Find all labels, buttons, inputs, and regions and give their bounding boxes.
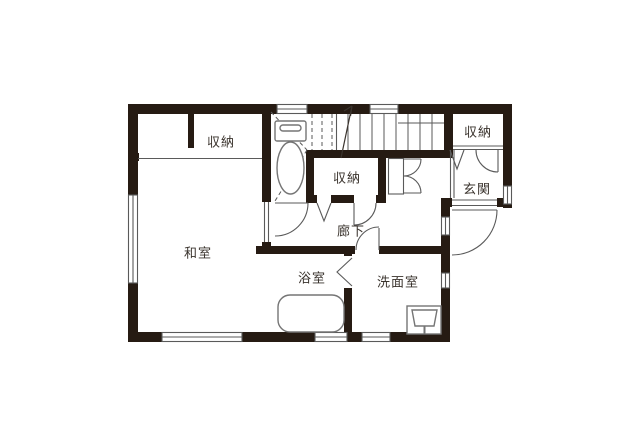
room-label-hallway: 廊下 — [337, 221, 365, 240]
front-door — [452, 210, 497, 255]
floorplan: 収納 収納 収納 玄関 和室 廊下 浴室 洗面室 — [0, 0, 640, 445]
closet-mid-folding-door — [317, 203, 331, 221]
room-label-washroom: 洗面室 — [377, 272, 419, 291]
room-label-closet-middle: 収納 — [333, 168, 361, 187]
wall-top — [128, 104, 512, 114]
wall-closet-stub — [188, 114, 194, 148]
understairs-nook — [389, 159, 404, 195]
room-label-entrance: 玄関 — [463, 179, 491, 198]
wall-stairs-entrance — [444, 114, 453, 152]
wall-closet-mid-bottom-b — [331, 195, 354, 203]
wall-closet-mid-bottom-a — [306, 195, 317, 203]
wall-left-tick — [134, 153, 139, 161]
sink-icon — [407, 306, 441, 334]
sink-basin — [412, 310, 437, 326]
wall-entrance-south-left — [441, 198, 452, 207]
bathtub-icon — [278, 295, 344, 332]
floorplan-drawing — [0, 0, 640, 445]
room-label-bathroom: 浴室 — [298, 268, 326, 287]
understairs-double-door-top — [404, 159, 421, 176]
wall-closet-mid-bottom-c — [376, 195, 386, 203]
toilet-lid — [280, 125, 301, 131]
entrance-closet-swing-door — [476, 150, 498, 172]
wall-hall-south-a — [256, 246, 355, 254]
toilet-icon — [275, 121, 306, 194]
understairs-double-door-bottom — [404, 176, 421, 193]
room-label-japanese-room: 和室 — [184, 243, 212, 262]
room-label-closet-entrance: 収納 — [464, 122, 492, 141]
wall-bath-divider-bottom — [344, 286, 352, 332]
wall-washitsu-east — [262, 114, 271, 202]
toilet-bowl — [277, 142, 304, 194]
toilet-door — [275, 203, 308, 236]
room-label-closet-top-left: 収納 — [207, 132, 235, 151]
stairs — [348, 114, 432, 150]
wall-hall-south-b — [379, 246, 450, 254]
